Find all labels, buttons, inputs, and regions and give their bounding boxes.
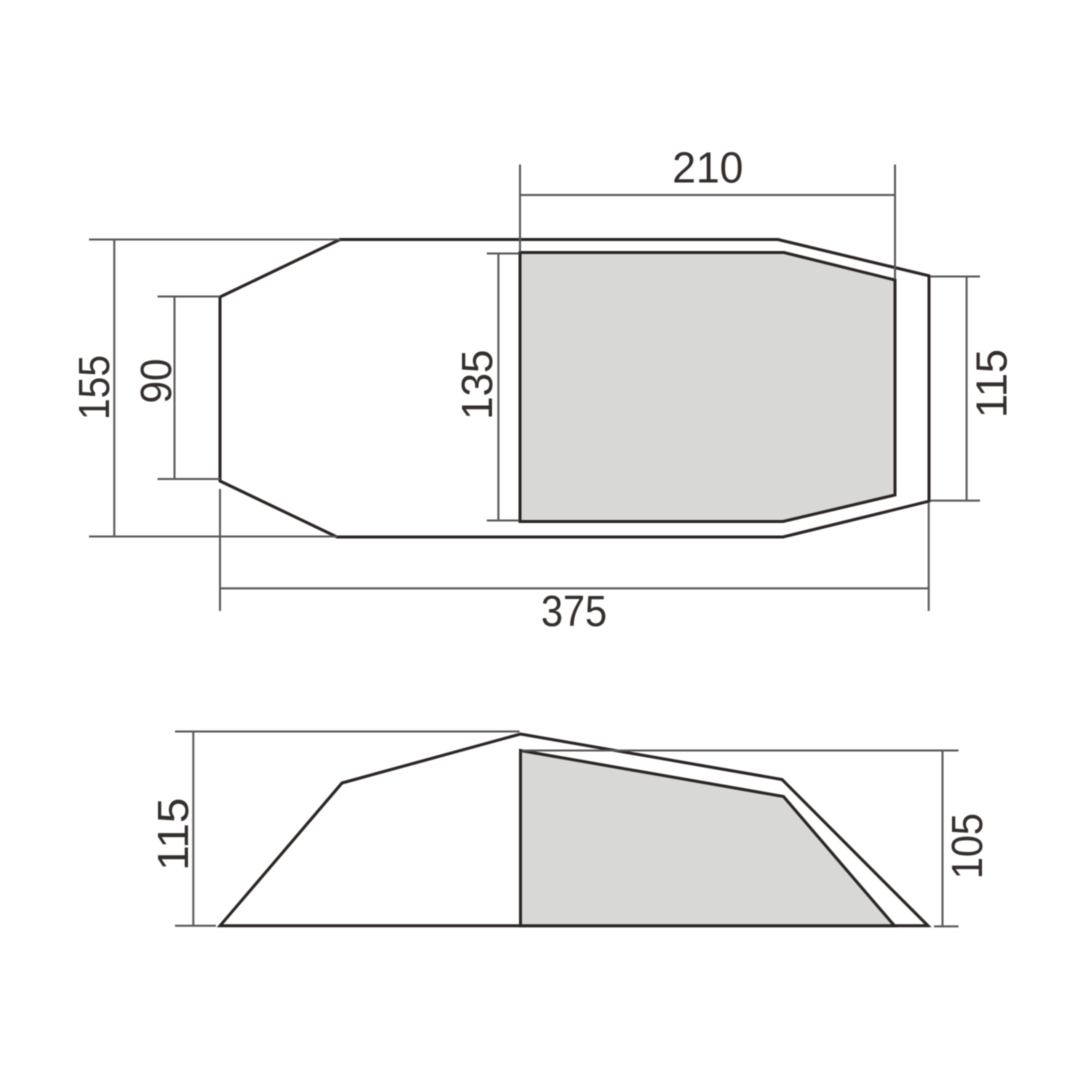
svg-text:210: 210 (672, 144, 743, 193)
svg-text:105: 105 (943, 813, 992, 879)
svg-text:375: 375 (541, 587, 607, 636)
svg-text:90: 90 (132, 359, 181, 404)
svg-text:135: 135 (453, 350, 502, 420)
svg-text:115: 115 (968, 349, 1017, 418)
svg-text:155: 155 (70, 355, 119, 420)
svg-text:115: 115 (149, 798, 198, 871)
